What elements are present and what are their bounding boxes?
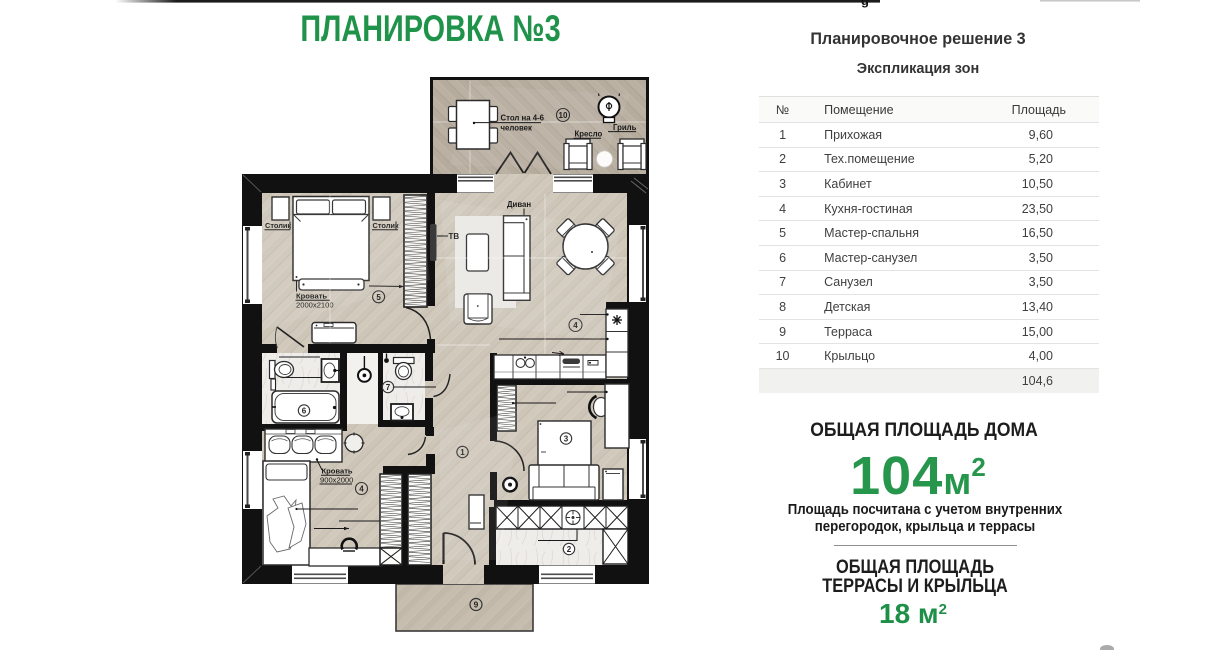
svg-text:2: 2 — [567, 545, 572, 554]
svg-text:Гриль: Гриль — [613, 123, 637, 132]
svg-text:10: 10 — [559, 111, 568, 120]
svg-text:Диван: Диван — [507, 200, 531, 209]
svg-text:Стол на 4-6: Стол на 4-6 — [501, 114, 545, 123]
svg-text:9: 9 — [474, 600, 479, 610]
svg-text:900х2000: 900х2000 — [320, 476, 353, 485]
svg-text:7: 7 — [386, 383, 391, 392]
svg-text:6: 6 — [302, 407, 307, 416]
svg-text:4: 4 — [359, 485, 364, 494]
svg-text:Кресло: Кресло — [575, 130, 603, 139]
svg-text:человек: человек — [501, 124, 533, 133]
svg-text:g: g — [861, 0, 869, 8]
svg-text:3: 3 — [564, 435, 569, 444]
svg-text:Кровать: Кровать — [322, 467, 353, 476]
